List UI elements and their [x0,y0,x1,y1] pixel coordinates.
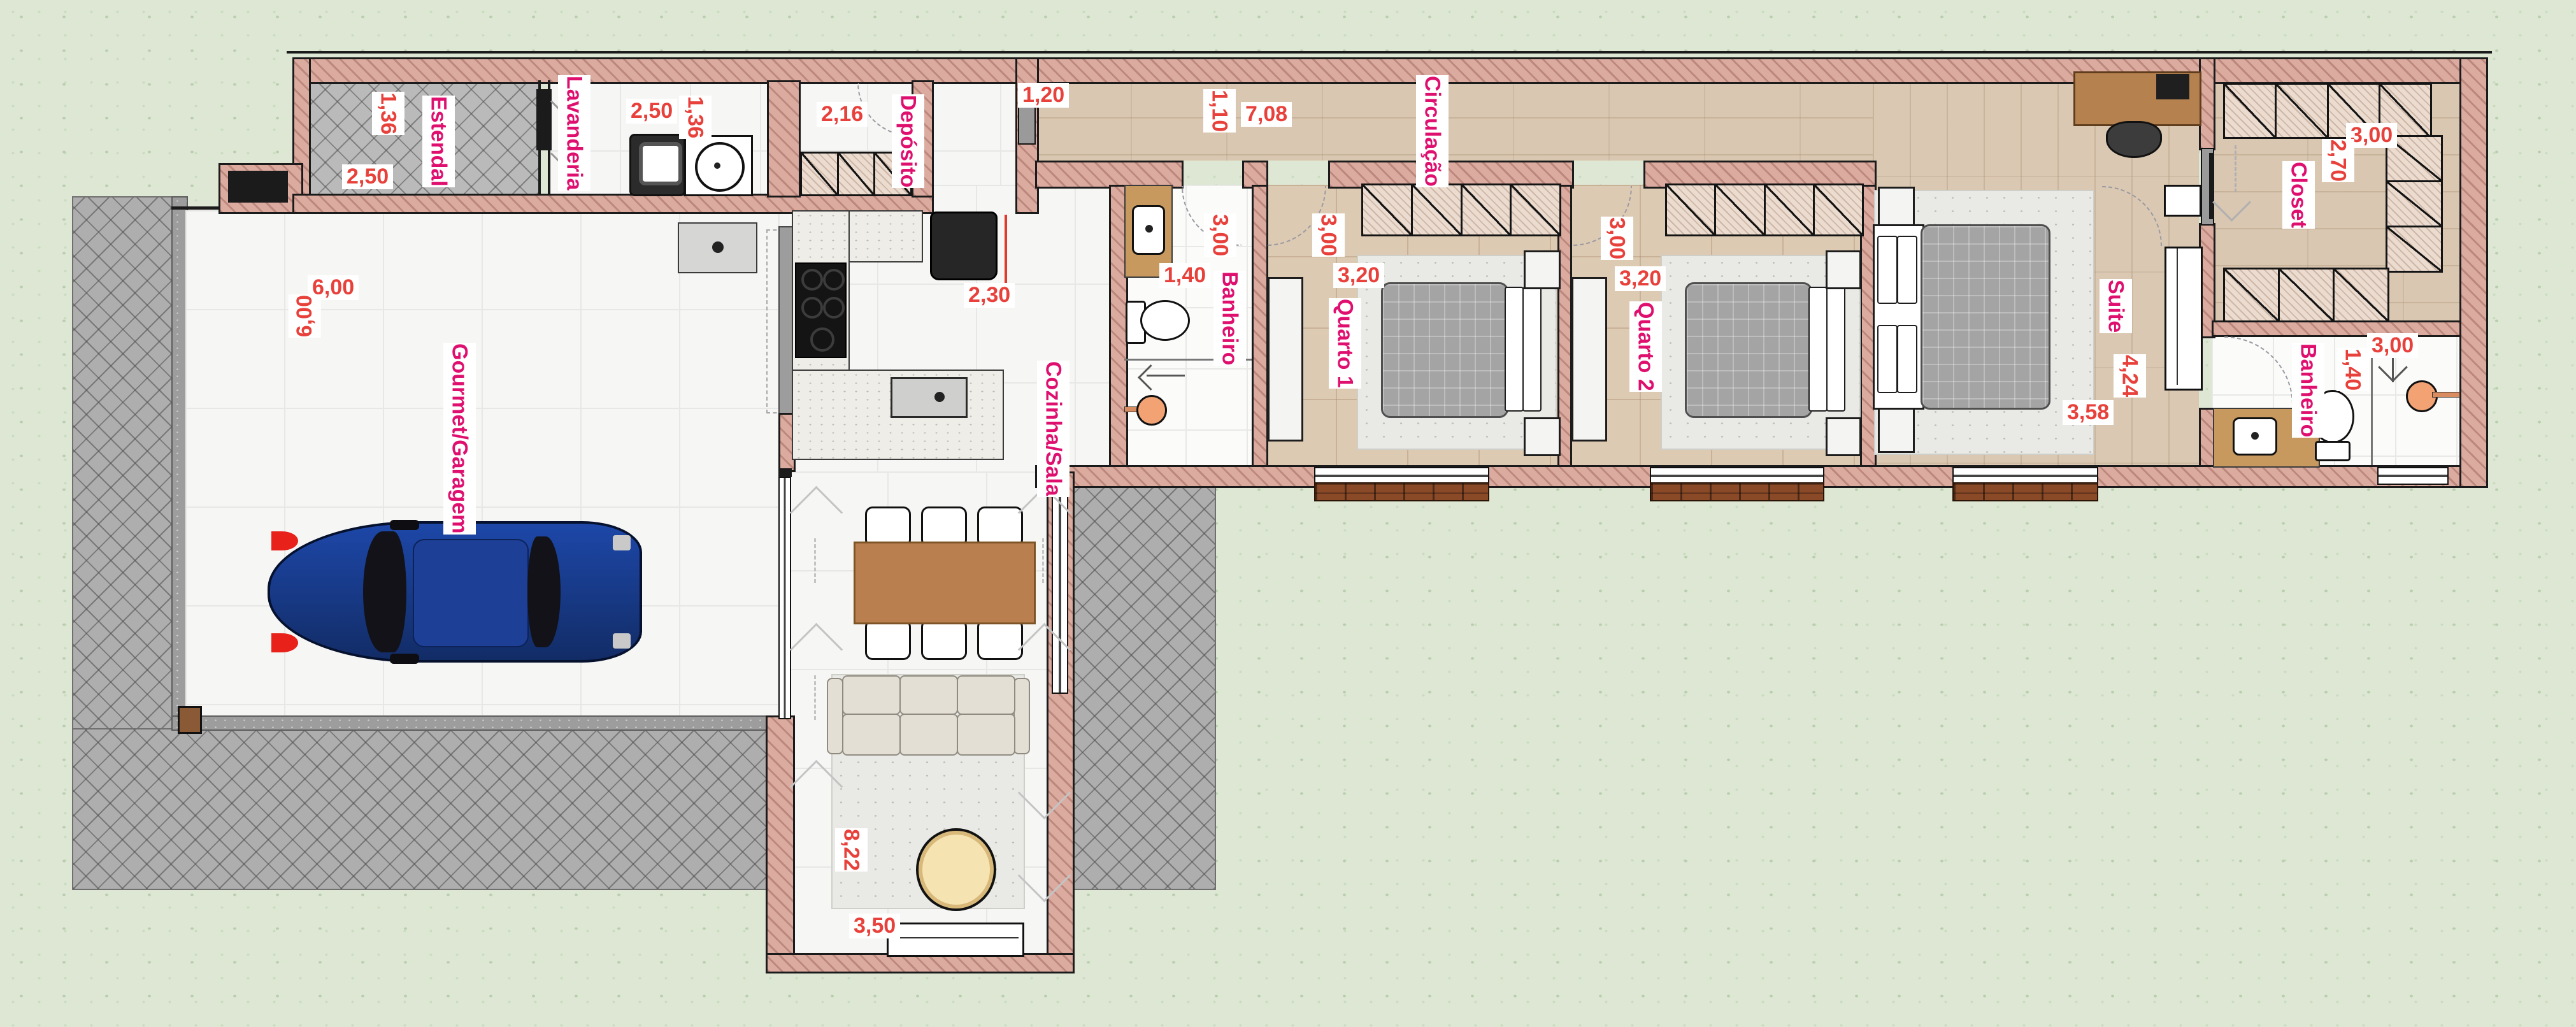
room-label-circulacao: Circulação [1416,75,1449,187]
dim-cozinha-c: 3,50 [849,914,900,938]
churrasqueira-grill [228,171,288,203]
sofa-armrest [1013,678,1030,754]
kitchen-sink-drain [934,392,945,402]
dim-lavanderia-b: 1,36 [679,96,712,139]
car-mirror-top [390,520,419,530]
dining-chair [977,619,1023,660]
sofa-armrest [827,678,843,754]
deck-quarto2 [1650,482,1824,501]
washing-machine [629,134,685,196]
suite-nightstand [1878,187,1915,227]
car-rear-window [527,536,561,647]
wall-stub-cap [778,468,792,477]
closet-wardrobe-right [2386,135,2443,273]
banheiro1-sink [1132,205,1165,255]
shower-head-icon [1136,395,1167,426]
room-label-estendal: Estendal [422,96,455,187]
kitchen-sink [891,377,968,418]
suite-nightstand [1878,408,1915,453]
dim-quarto1-b: 3,20 [1333,263,1384,288]
wall-lavanderia-deposito [767,80,801,197]
quarto2-dresser [1571,277,1607,442]
suite-mattress [1921,224,2050,410]
glass-garage-sala [778,477,791,719]
quarto2-pillow [1826,287,1845,412]
dim-gourmet-b: 6,00 [289,294,321,338]
quarto1-pillow [1522,287,1542,412]
washer-drum [639,142,682,185]
quarto1-wardrobe [1361,183,1561,236]
patio-paving-right-of-living [1071,484,1216,890]
closet-wardrobe-bottom [2223,268,2389,322]
floor-arrow-stem [814,538,816,583]
room-label-closet: Closet [2282,161,2315,229]
cooktop [795,262,847,358]
dim-quarto1-a: 3,00 [1312,213,1345,257]
fridge [930,212,998,280]
window-banheiro2 [2377,467,2449,485]
gourmet-counter [678,222,757,273]
room-label-gourmet: Gourmet/Garagem [443,343,476,535]
car-light-rear-bottom [613,633,631,649]
dining-chair [865,619,911,660]
dim-quarto2-b: 3,20 [1615,266,1666,291]
tv-stand [887,923,1024,957]
deck-quarto1 [1314,482,1489,501]
quarto1-nightstand [1524,250,1561,289]
dining-table [854,542,1036,624]
quarto1-dresser [1268,277,1303,442]
estendal-door-leaf [536,89,552,150]
gourmet-sink-icon [712,241,724,253]
room-label-banheiro2: Banheiro [2292,343,2324,438]
dim-circulacao-a: 1,10 [1203,89,1236,133]
quarto2-wardrobe [1665,183,1864,236]
dim-lavanderia-a: 2,50 [626,99,677,124]
dim-hall: 1,20 [1018,83,1069,108]
closet-sliding-door-leaf [2209,153,2214,219]
room-label-quarto2: Quarto 2 [1629,301,1662,392]
desk-chair [2106,121,2162,158]
room-label-banheiro1: Banheiro [1213,271,1246,366]
dim-closet-b: 2,70 [2322,139,2354,182]
car-roof [413,539,529,647]
wood-post [178,706,202,734]
car [268,521,642,663]
laundry-tub [684,135,753,196]
closet-wardrobe-top [2223,83,2432,139]
car-light-front-bottom [271,633,298,652]
floor-plan-canvas: 1,36 2,50 Estendal 2,50 1,36 Lavanderia … [0,0,2576,1027]
car-windshield [363,531,406,652]
dim-quarto2-a: 3,00 [1601,217,1633,260]
garage-curb-bottom [171,715,781,731]
toilet-bowl [1140,300,1190,341]
round-side-table [916,828,996,911]
dim-deposito: 2,16 [817,102,868,127]
dining-chair [921,619,967,660]
floor-arrow-stem [1042,538,1044,583]
dim-suite-a: 4,24 [2114,354,2146,398]
car-light-rear-top [613,535,631,550]
deck-suite [1952,482,2098,501]
dim-cozinha-b: 8,22 [835,828,868,872]
car-light-front-top [271,531,298,550]
room-label-cozinha: Cozinha/Sala [1037,361,1070,497]
room-label-quarto1: Quarto 1 [1329,298,1361,389]
room-label-suite: Suite [2100,279,2132,333]
dim-suite-b: 3,58 [2063,400,2114,425]
dim-estendal-b: 2,50 [342,164,393,189]
dim-banheiro2-a: 1,40 [2336,348,2369,391]
room-label-lavanderia: Lavanderia [558,75,590,191]
roof-overhang-line [287,51,2492,54]
quarto1-mattress [1381,282,1508,418]
toilet-tank [2315,441,2351,461]
desk-monitor-icon [2156,74,2189,99]
car-mirror-bottom [390,654,419,664]
suite-tv-cabinet [2165,247,2203,391]
wall-wing-right [2459,57,2488,488]
floor-arrow-stem [814,675,816,720]
sofa [827,675,1027,755]
quarto2-mattress [1685,282,1812,418]
driveway-paving-bottom [72,728,781,890]
quarto1-pillow [1505,287,1524,412]
closet-entry-stem [2235,145,2236,192]
quarto2-nightstand [1826,417,1861,456]
wall-sala-left [766,715,795,973]
quarto1-nightstand [1524,417,1561,456]
laundry-drain [714,162,720,169]
dim-banheiro1-b: 1,40 [1159,263,1210,288]
dim-estendal-a: 1,36 [372,92,404,135]
banheiro2-sink [2233,417,2277,456]
wall-closet-banheiro2 [2212,320,2463,337]
quarto2-pillow [1808,287,1828,412]
dim-banheiro1-a: 3,00 [1204,213,1236,257]
shower-arm [2432,392,2460,398]
dim-banheiro2-b: 3,00 [2367,333,2418,358]
suite-door-leaf [2164,185,2201,217]
quarto2-nightstand [1826,250,1861,289]
dim-circulacao-b: 7,08 [1241,102,1292,127]
room-label-deposito: Depósito [892,94,924,188]
dim-cozinha-a: 2,30 [964,283,1015,308]
